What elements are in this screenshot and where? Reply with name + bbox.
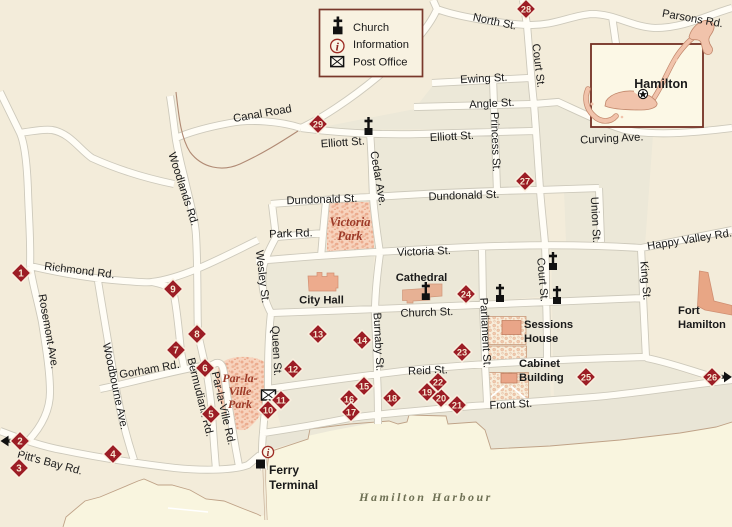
- svg-text:4: 4: [110, 450, 116, 461]
- svg-text:Church St.: Church St.: [400, 306, 453, 320]
- svg-text:Sessions: Sessions: [524, 319, 573, 331]
- svg-text:22: 22: [433, 378, 443, 388]
- svg-text:12: 12: [288, 365, 298, 375]
- svg-text:8: 8: [194, 330, 200, 341]
- svg-text:Fort: Fort: [678, 305, 700, 317]
- svg-text:Par-la-: Par-la-: [222, 371, 257, 385]
- svg-text:17: 17: [346, 408, 356, 418]
- svg-text:9: 9: [170, 285, 176, 296]
- svg-text:11: 11: [276, 396, 286, 406]
- svg-text:18: 18: [387, 394, 397, 404]
- svg-text:Dundonald St.: Dundonald St.: [428, 189, 499, 203]
- svg-text:Princess St.: Princess St.: [488, 112, 502, 172]
- svg-text:Ewing St.: Ewing St.: [460, 72, 508, 86]
- svg-text:Ville: Ville: [229, 384, 252, 398]
- svg-text:Ferry: Ferry: [269, 463, 299, 477]
- svg-text:Park: Park: [228, 397, 252, 411]
- svg-text:23: 23: [457, 348, 467, 358]
- svg-text:Cabinet: Cabinet: [519, 358, 560, 370]
- svg-text:Cathedral: Cathedral: [396, 272, 448, 284]
- svg-text:13: 13: [313, 330, 323, 340]
- svg-text:7: 7: [173, 346, 179, 357]
- svg-text:Park Rd.: Park Rd.: [269, 227, 313, 241]
- svg-text:City Hall: City Hall: [299, 295, 344, 307]
- svg-text:Church: Church: [353, 22, 389, 34]
- svg-text:Victoria: Victoria: [330, 215, 371, 229]
- svg-text:26: 26: [707, 373, 717, 383]
- svg-text:20: 20: [436, 394, 446, 404]
- svg-text:Hamilton Harbour: Hamilton Harbour: [358, 490, 493, 504]
- svg-text:19: 19: [422, 388, 432, 398]
- svg-text:Angle St.: Angle St.: [469, 97, 515, 111]
- svg-text:25: 25: [581, 373, 591, 383]
- svg-text:2: 2: [17, 437, 23, 448]
- svg-text:Front St.: Front St.: [489, 398, 532, 412]
- svg-text:6: 6: [202, 364, 208, 375]
- svg-text:1: 1: [18, 269, 24, 280]
- svg-text:Elliott St.: Elliott St.: [429, 130, 474, 144]
- svg-text:5: 5: [208, 410, 214, 421]
- svg-text:Building: Building: [519, 372, 564, 384]
- svg-text:Dundonald St.: Dundonald St.: [286, 193, 357, 207]
- svg-text:Hamilton: Hamilton: [678, 319, 726, 331]
- svg-text:3: 3: [16, 464, 22, 475]
- svg-text:21: 21: [452, 401, 462, 411]
- svg-text:Information: Information: [353, 39, 409, 51]
- svg-text:10: 10: [263, 406, 273, 416]
- svg-text:i: i: [267, 448, 270, 459]
- svg-text:Hamilton: Hamilton: [634, 77, 687, 91]
- svg-text:Victoria St.: Victoria St.: [397, 245, 451, 259]
- svg-text:House: House: [524, 333, 558, 345]
- svg-text:14: 14: [357, 336, 368, 346]
- svg-text:Park: Park: [338, 229, 364, 243]
- svg-text:Post Office: Post Office: [353, 56, 408, 68]
- svg-text:28: 28: [521, 5, 531, 15]
- svg-text:Union St.: Union St.: [588, 197, 602, 244]
- svg-text:29: 29: [313, 120, 323, 130]
- svg-text:Terminal: Terminal: [269, 478, 318, 492]
- svg-text:24: 24: [461, 290, 472, 300]
- svg-text:15: 15: [359, 382, 369, 392]
- svg-text:27: 27: [520, 177, 530, 187]
